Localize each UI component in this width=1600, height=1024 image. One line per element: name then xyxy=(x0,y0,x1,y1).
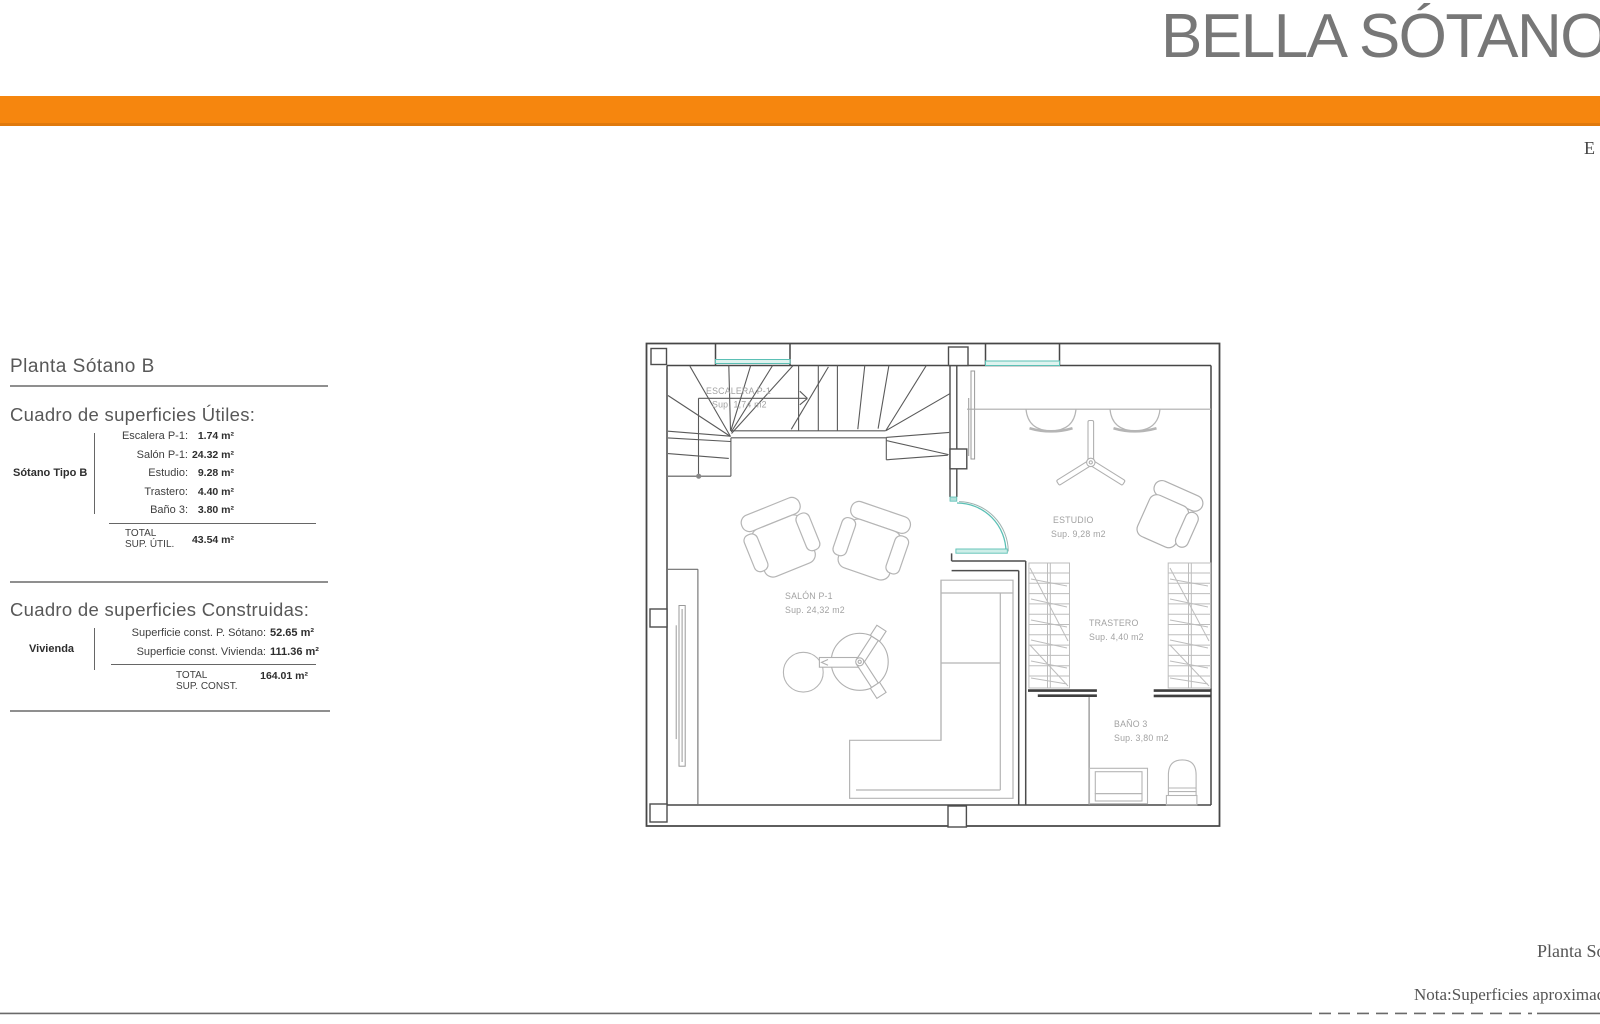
svg-text:ESCALERA P-1: ESCALERA P-1 xyxy=(706,386,771,396)
svg-text:Sup. 4,40 m2: Sup. 4,40 m2 xyxy=(1089,632,1144,642)
svg-text:Sup. 1,74 m2: Sup. 1,74 m2 xyxy=(712,400,767,410)
svg-text:Sup. 24,32 m2: Sup. 24,32 m2 xyxy=(785,605,845,615)
svg-text:ESTUDIO: ESTUDIO xyxy=(1053,515,1094,525)
svg-text:Sup. 3,80 m2: Sup. 3,80 m2 xyxy=(1114,733,1169,743)
svg-text:BAÑO 3: BAÑO 3 xyxy=(1114,719,1147,729)
svg-text:Sup. 9,28 m2: Sup. 9,28 m2 xyxy=(1051,529,1106,539)
svg-text:SALÓN P-1: SALÓN P-1 xyxy=(785,591,833,601)
svg-text:TRASTERO: TRASTERO xyxy=(1089,618,1139,628)
